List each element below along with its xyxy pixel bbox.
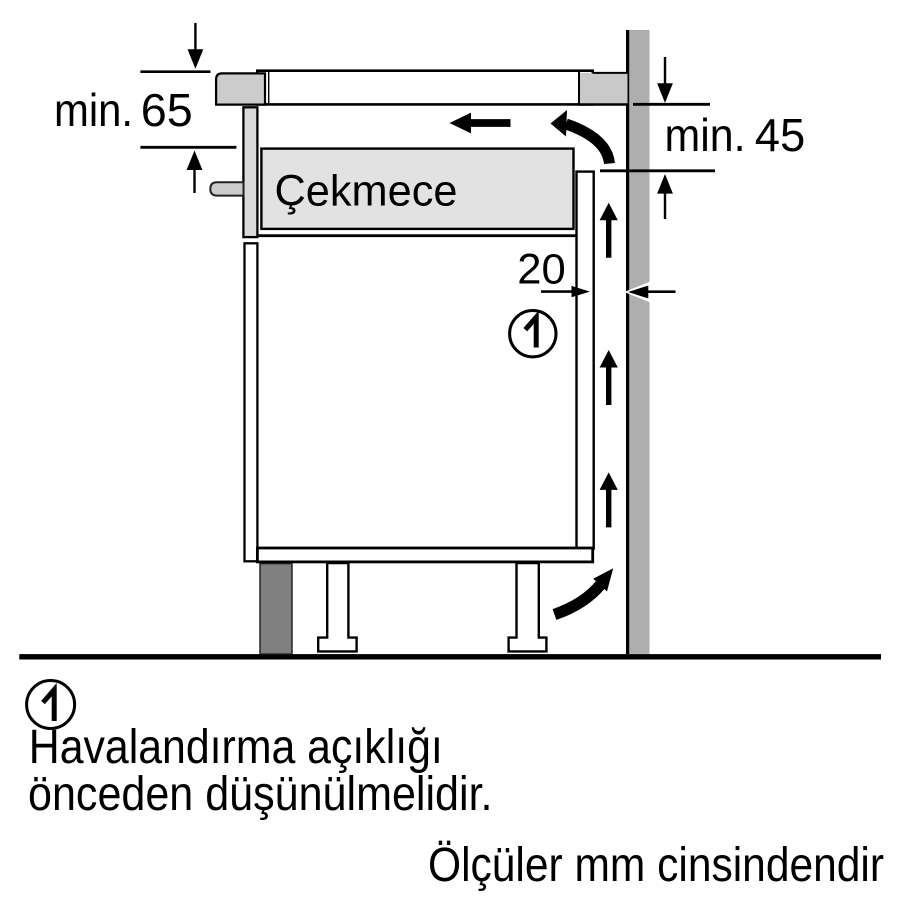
- svg-text:Ölçüler mm cinsindendir: Ölçüler mm cinsindendir: [428, 839, 884, 892]
- svg-text:45: 45: [755, 109, 806, 161]
- svg-text:20: 20: [517, 246, 566, 294]
- svg-text:65: 65: [141, 84, 193, 136]
- svg-text:min.: min.: [665, 109, 746, 161]
- svg-text:önceden düşünülmelidir.: önceden düşünülmelidir.: [28, 768, 493, 821]
- svg-text:Çekmece: Çekmece: [275, 168, 458, 216]
- svg-text:min.: min.: [54, 84, 133, 136]
- svg-text:Havalandırma açıklığı: Havalandırma açıklığı: [29, 721, 443, 774]
